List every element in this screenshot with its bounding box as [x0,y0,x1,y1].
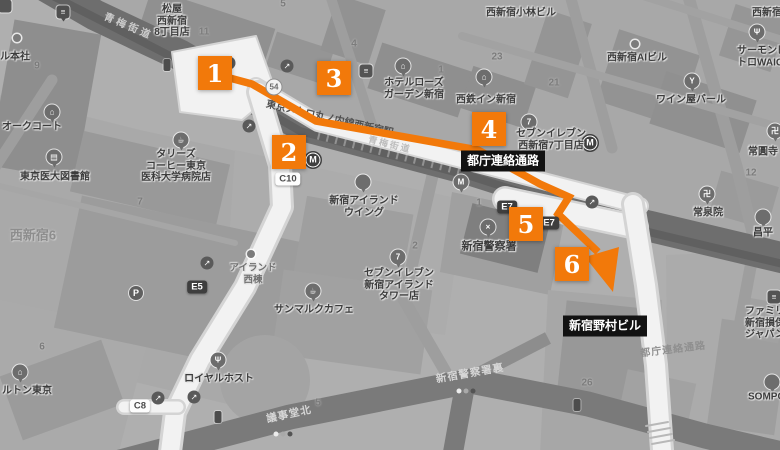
shohei-icon[interactable] [756,210,771,225]
poi-text-line: 西新宿 [752,7,780,19]
poi-text-line: 松屋 [154,4,190,16]
block-number: 26 [581,378,592,389]
poi-text-line: 常圓寺 [748,146,778,158]
familymart-label[interactable]: ファミリー新宿損保ジャパン [745,306,780,341]
poi-text-line: サーモンピ [737,46,780,58]
tocho-passage-label: 都庁連絡通路 [461,151,545,172]
seven-eleven-nishi7-label[interactable]: セブンイレブン西新宿7丁目店 [516,129,586,152]
route-arrow-head [585,247,619,292]
matsuya-label[interactable]: 松屋西新宿8丁目店 [154,4,190,39]
poi-text-line: セブンイレブン [364,268,434,280]
police-icon[interactable]: × [481,220,496,235]
poi-text-line: 西新宿AIビル [607,52,667,64]
route-54-badge[interactable]: 54 [266,79,283,96]
poi-text-line: タリーズ [141,149,211,161]
escalator-icon[interactable]: ↗ [281,60,294,73]
escalator-icon[interactable]: ↗ [152,392,165,405]
seven-eleven-icon[interactable]: 7 [391,250,406,265]
temple-manji-icon[interactable]: 卍 [700,187,715,202]
route-marker-6: 6 [555,247,589,281]
metro-station-icon[interactable]: M [306,153,321,168]
tullys-cafe-icon[interactable]: ☕ [174,133,189,148]
oak-court-label[interactable]: オークコート [2,121,62,133]
escalator-icon[interactable]: ↗ [188,391,201,404]
hilton-label[interactable]: ルトン東京 [2,385,52,397]
hotel-rose-garden-label[interactable]: ホテルローズガーデン新宿 [384,78,444,101]
poi-text-line: SOMPO [748,391,780,403]
poi-text-line: 新宿損保 [745,317,780,329]
seven-eleven-icon[interactable]: 7 [522,115,537,130]
escalator-icon[interactable]: ↗ [201,257,214,270]
parking-icon[interactable]: P [129,286,143,300]
ai-bldg-label[interactable]: 西新宿AIビル [607,52,667,64]
joenji-label[interactable]: 常圓寺 [748,146,778,158]
poi-text-line: 8丁目店 [154,27,190,39]
route-marker-5: 5 [509,207,543,241]
exit-c10: C10 [275,173,300,186]
temple-manji-icon[interactable]: 卍 [768,124,780,139]
poi-text-line: ロイヤルホスト [184,373,254,385]
poi-text-line: ファミリー [745,306,780,318]
honsha-label[interactable]: ル本社 [0,51,30,63]
poi-text-line: 昌平 [753,227,773,239]
bus-stop-icon[interactable]: ≡ [57,6,70,19]
familymart-icon[interactable]: ≡ [768,291,780,304]
traffic-light-icon[interactable] [164,59,171,71]
poi-text-line: ルトン東京 [2,385,52,397]
route-marker-3: 3 [317,61,351,95]
restaurant-icon[interactable]: Ψ [750,25,765,40]
escalator-icon[interactable]: ↗ [586,196,599,209]
poi-text-line: ホテルローズ [384,78,444,90]
route-marker-2: 2 [272,135,306,169]
hotel-rose-garden-icon[interactable]: ⌂ [396,59,411,74]
wine-bar-label[interactable]: ワイン屋バール [656,94,726,106]
poi-text-line: 新宿警察署 [462,241,517,253]
traffic-light-icon[interactable] [215,411,222,423]
sompo-label[interactable]: SOMPO [748,391,780,403]
poi-text-line: ワイン屋バール [656,94,726,106]
route-overlay [0,0,780,450]
josenin-label[interactable]: 常泉院 [693,207,723,219]
seven-eleven-island-label[interactable]: セブンイレブン新宿アイランドタワー店 [364,268,434,303]
poi-text-line: サンマルクカフェ [274,304,354,316]
store-icon[interactable]: ≡ [360,65,373,78]
poi-text-line: トロWAIGA [737,57,780,69]
poi-text-line: 医科大学病院店 [141,172,211,184]
poi-text-line: タワー店 [364,291,434,303]
block-number: 5 [315,398,321,409]
tullys-label[interactable]: タリーズコーヒー東京医科大学病院店 [141,149,211,184]
island-west-label[interactable]: アイランド西棟 [229,263,276,286]
poi-text-line: 常泉院 [693,207,723,219]
nishitetsu-inn-label[interactable]: 西鉄イン新宿 [456,94,516,106]
shohei-label[interactable]: 昌平 [753,227,773,239]
route-marker-4: 4 [472,112,506,146]
poi-text-line: 東京医大図書館 [20,171,90,183]
route-marker-1: 1 [198,56,232,90]
island-wing-label[interactable]: 新宿アイランドウイング [329,196,399,219]
block-number: 12 [745,168,756,179]
poi-text-line: ジャパン [745,329,780,341]
exit-e5: E5 [187,281,207,294]
poi-text-line: 西鉄イン新宿 [456,94,516,106]
poi-text-line: コーヒー東京 [141,160,211,172]
nishi-shinjuku-partial-label[interactable]: 西新宿 [752,7,780,19]
signal-dots-icon[interactable] [273,432,294,437]
block-number: 5 [280,0,286,10]
med-library-label[interactable]: 東京医大図書館 [20,171,90,183]
block-number: 9 [34,61,40,72]
nishitetsu-inn-icon[interactable]: ⌂ [477,70,492,85]
poi-text-line: ル本社 [0,51,30,63]
wine-bar-icon[interactable]: Y [685,74,700,89]
hilton-icon[interactable]: ⌂ [13,365,28,380]
block-number: 23 [491,52,502,63]
poi-text-line: ウイング [329,207,399,219]
salmon-waiga-label[interactable]: サーモンピトロWAIGA [737,46,780,69]
nomura-building-label: 新宿野村ビル [563,316,647,337]
poi-text-line: 西棟 [229,274,276,286]
poi-text-line: ガーデン新宿 [384,89,444,101]
island-wing-icon[interactable] [356,175,371,190]
sanmarc-cafe-icon[interactable]: ☕ [306,284,321,299]
island-west-icon[interactable] [247,250,255,258]
oak-court-icon[interactable]: ⌂ [45,105,60,120]
poi-text-line: アイランド [229,263,276,275]
block-number: 1 [476,198,482,209]
block-number: 2 [412,241,418,252]
signal-dots-icon[interactable] [456,389,477,394]
sompo-icon[interactable] [765,375,780,390]
poi-text-line: 西新宿小林ビル [486,7,556,19]
honsha-icon[interactable] [13,34,21,42]
kobayashi-bldg-label[interactable]: 西新宿小林ビル [486,7,556,19]
block-number: 1 [438,65,444,76]
block-number: 4 [351,39,357,50]
royal-host-label[interactable]: ロイヤルホスト [184,373,254,385]
police-hq-label[interactable]: 新宿警察署 [462,241,517,253]
poi-text-line: オークコート [2,121,62,133]
block-number: 6 [39,342,45,353]
poi-text-line: 西新宿 [154,15,190,27]
library-icon[interactable]: ▤ [47,150,62,165]
sanmarc-label[interactable]: サンマルクカフェ [274,304,354,316]
exit-c8: C8 [130,400,150,413]
poi-text-line: 新宿アイランド [364,279,434,291]
traffic-light-icon[interactable] [574,399,581,411]
mcdonalds-icon[interactable]: M [454,175,469,190]
royal-host-icon[interactable]: Ψ [211,353,226,368]
ai-building-icon[interactable] [631,40,639,48]
block-number: 7 [137,197,143,208]
poi-text-line: セブンイレブン [516,129,586,141]
poi-text-line: 新宿アイランド [329,196,399,208]
escalator-icon[interactable]: ↗ [243,120,256,133]
block-number: 21 [548,78,559,89]
block-number: 11 [199,27,210,38]
map-canvas[interactable]: 青梅街道青梅街道東京メトロ丸ノ内線西新宿駅議事堂北新宿警察署裏都庁連絡通路 西新… [0,0,780,450]
corner-store-icon[interactable] [0,0,12,13]
